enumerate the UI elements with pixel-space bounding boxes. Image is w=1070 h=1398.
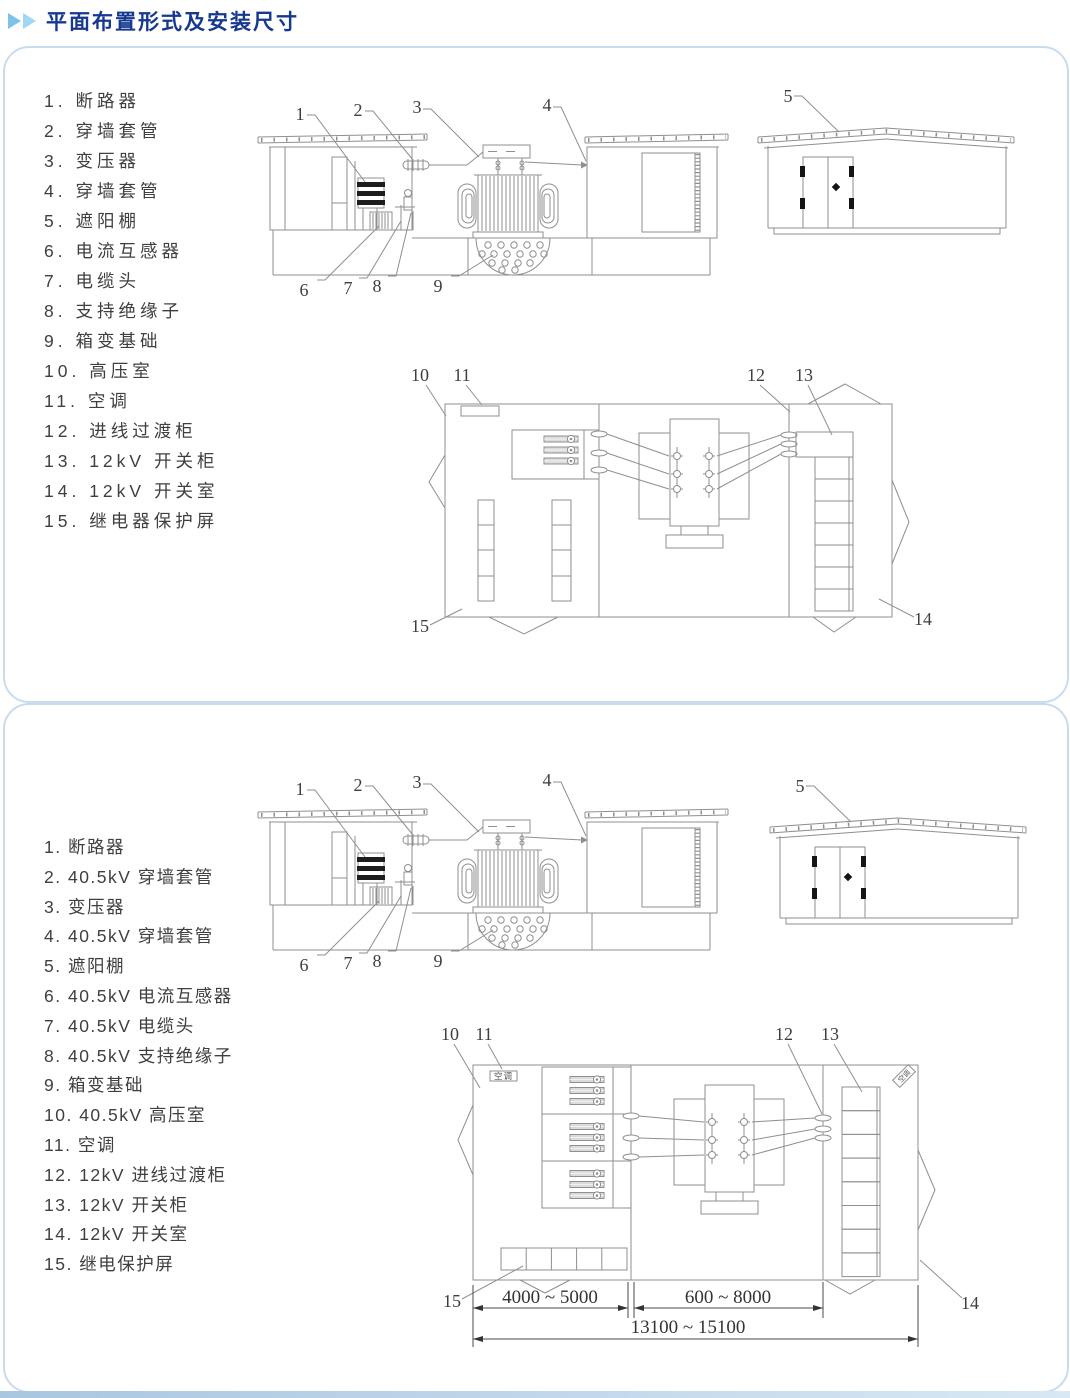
legend-item: 13. 12kV 开关柜 bbox=[44, 446, 218, 476]
arrow-icon bbox=[8, 13, 21, 29]
legend-item: 14. 12kV 开关室 bbox=[44, 1220, 233, 1250]
legend-item: 4. 40.5kV 穿墙套管 bbox=[44, 922, 233, 952]
legend-item: 12. 12kV 进线过渡柜 bbox=[44, 1161, 233, 1191]
legend-item: 10. 40.5kV 高压室 bbox=[44, 1101, 233, 1131]
legend-item: 9. 箱变基础 bbox=[44, 1071, 233, 1101]
legend-list-top: 1. 断路器 2. 穿墙套管 3. 变压器 4. 穿墙套管 5. 遮阳棚 6. … bbox=[44, 86, 218, 536]
dimension-label: 13100 ~ 15100 bbox=[631, 1317, 746, 1338]
legend-item: 10. 高压室 bbox=[44, 356, 218, 386]
legend-item: 9. 箱变基础 bbox=[44, 326, 218, 356]
elevation-drawing-top: 1 2 3 4 6 7 8 9 bbox=[255, 85, 730, 320]
legend-item: 14. 12kV 开关室 bbox=[44, 476, 218, 506]
legend-item: 11. 空调 bbox=[44, 386, 218, 416]
legend-item: 15. 继电保护屏 bbox=[44, 1250, 233, 1280]
callout-number: 14 bbox=[961, 1293, 979, 1313]
callout-number: 2 bbox=[354, 775, 363, 795]
callout-number: 8 bbox=[373, 276, 382, 296]
legend-item: 7. 40.5kV 电缆头 bbox=[44, 1012, 233, 1042]
legend-item: 3. 变压器 bbox=[44, 893, 233, 923]
callout-number: 1 bbox=[296, 104, 305, 124]
elevation-drawing-bottom: 1 2 3 4 6 7 8 9 bbox=[255, 760, 730, 995]
callout-number: 12 bbox=[775, 1024, 793, 1044]
dimension-label: 4000 ~ 5000 bbox=[502, 1287, 598, 1308]
canopy-drawing-bottom: 5 bbox=[750, 770, 1045, 935]
callout-number: 9 bbox=[434, 951, 443, 971]
callout-number: 10 bbox=[441, 1024, 459, 1044]
page-footer-bar bbox=[0, 1391, 1070, 1398]
legend-item: 15. 继电器保护屏 bbox=[44, 506, 218, 536]
legend-item: 5. 遮阳棚 bbox=[44, 952, 233, 982]
callout-number: 12 bbox=[747, 365, 765, 385]
legend-item: 6. 40.5kV 电流互感器 bbox=[44, 982, 233, 1012]
callout-number: 15 bbox=[411, 616, 429, 636]
callout-number: 7 bbox=[344, 953, 353, 973]
legend-item: 8. 支持绝缘子 bbox=[44, 296, 218, 326]
callout-number: 15 bbox=[443, 1291, 461, 1311]
plan-drawing-top: 10 11 12 13 15 14 bbox=[400, 355, 945, 640]
callout-number: 7 bbox=[344, 278, 353, 298]
legend-list-bottom: 1. 断路器 2. 40.5kV 穿墙套管 3. 变压器 4. 40.5kV 穿… bbox=[44, 833, 233, 1280]
legend-item: 2. 穿墙套管 bbox=[44, 116, 218, 146]
callout-number: 3 bbox=[413, 97, 422, 117]
legend-item: 3. 变压器 bbox=[44, 146, 218, 176]
callout-number: 10 bbox=[411, 365, 429, 385]
page-title: 平面布置形式及安装尺寸 bbox=[46, 6, 299, 36]
callout-number: 11 bbox=[453, 365, 470, 385]
page-header: 平面布置形式及安装尺寸 bbox=[8, 6, 299, 36]
callout-number: 4 bbox=[543, 770, 552, 790]
legend-item: 11. 空调 bbox=[44, 1131, 233, 1161]
legend-item: 8. 40.5kV 支持绝缘子 bbox=[44, 1042, 233, 1072]
arrow-icon bbox=[23, 13, 36, 29]
callout-number: 4 bbox=[543, 95, 552, 115]
callout-number: 13 bbox=[821, 1024, 839, 1044]
ac-box-label: 空调 bbox=[494, 1071, 513, 1081]
callout-number: 6 bbox=[300, 280, 309, 300]
callout-number: 1 bbox=[296, 779, 305, 799]
legend-item: 5. 遮阳棚 bbox=[44, 206, 218, 236]
legend-item: 2. 40.5kV 穿墙套管 bbox=[44, 863, 233, 893]
dimension-label: 600 ~ 8000 bbox=[685, 1287, 771, 1308]
callout-number: 6 bbox=[300, 955, 309, 975]
legend-item: 13. 12kV 开关柜 bbox=[44, 1191, 233, 1221]
catalog-page: 平面布置形式及安装尺寸 1. 断路器 2. 穿墙套管 3. 变压器 4. 穿墙套… bbox=[0, 0, 1070, 1398]
legend-item: 4. 穿墙套管 bbox=[44, 176, 218, 206]
canopy-drawing-top: 5 bbox=[738, 80, 1033, 245]
legend-item: 6. 电流互感器 bbox=[44, 236, 218, 266]
legend-item: 1. 断路器 bbox=[44, 833, 233, 863]
callout-number: 8 bbox=[373, 951, 382, 971]
callout-number: 5 bbox=[796, 776, 805, 796]
legend-item: 12. 进线过渡柜 bbox=[44, 416, 218, 446]
callout-number: 9 bbox=[434, 276, 443, 296]
callout-number: 13 bbox=[795, 365, 813, 385]
callout-number: 2 bbox=[354, 100, 363, 120]
callout-number: 5 bbox=[784, 86, 793, 106]
callout-number: 11 bbox=[475, 1024, 492, 1044]
callout-number: 3 bbox=[413, 772, 422, 792]
legend-item: 1. 断路器 bbox=[44, 86, 218, 116]
plan-drawing-bottom: 空调 空调 10 11 12 13 15 14 4000 ~ 5000 600 … bbox=[430, 1020, 995, 1355]
legend-item: 7. 电缆头 bbox=[44, 266, 218, 296]
callout-number: 14 bbox=[914, 609, 932, 629]
